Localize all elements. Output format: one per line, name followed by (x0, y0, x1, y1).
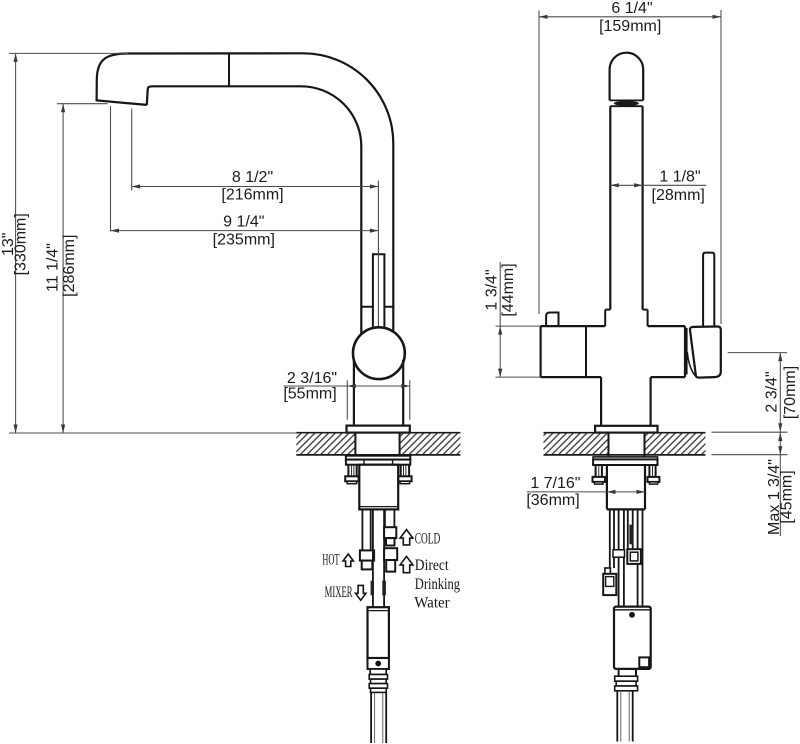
svg-text:11 1/4": 11 1/4" (44, 243, 61, 292)
svg-text:1 1/8": 1 1/8" (659, 169, 700, 186)
svg-text:[28mm]: [28mm] (652, 187, 705, 204)
svg-text:[70mm]: [70mm] (782, 366, 799, 419)
svg-text:2 3/16": 2 3/16" (287, 370, 337, 387)
svg-text:[44mm]: [44mm] (500, 263, 517, 316)
svg-text:1 3/4": 1 3/4" (484, 269, 501, 310)
svg-text:Water: Water (414, 595, 450, 612)
svg-text:6 1/4": 6 1/4" (611, 0, 652, 17)
svg-text:8 1/2": 8 1/2" (232, 169, 273, 186)
svg-text:[55mm]: [55mm] (283, 385, 336, 402)
svg-text:[216mm]: [216mm] (221, 187, 283, 204)
svg-text:Drinking: Drinking (415, 576, 460, 593)
svg-text:9 1/4": 9 1/4" (223, 214, 264, 231)
svg-text:[286mm]: [286mm] (61, 235, 78, 297)
svg-text:[330mm]: [330mm] (13, 213, 30, 275)
svg-text:2 3/4": 2 3/4" (764, 371, 781, 412)
svg-text:HOT: HOT (322, 552, 339, 569)
svg-text:[36mm]: [36mm] (526, 492, 579, 509)
svg-text:Direct: Direct (415, 557, 449, 574)
svg-text:COLD: COLD (415, 530, 441, 547)
svg-text:1 7/16": 1 7/16" (530, 475, 580, 492)
svg-text:[45mm]: [45mm] (778, 470, 795, 523)
svg-text:MIXER: MIXER (325, 584, 353, 601)
svg-text:[235mm]: [235mm] (213, 232, 275, 249)
svg-text:[159mm]: [159mm] (599, 18, 661, 35)
